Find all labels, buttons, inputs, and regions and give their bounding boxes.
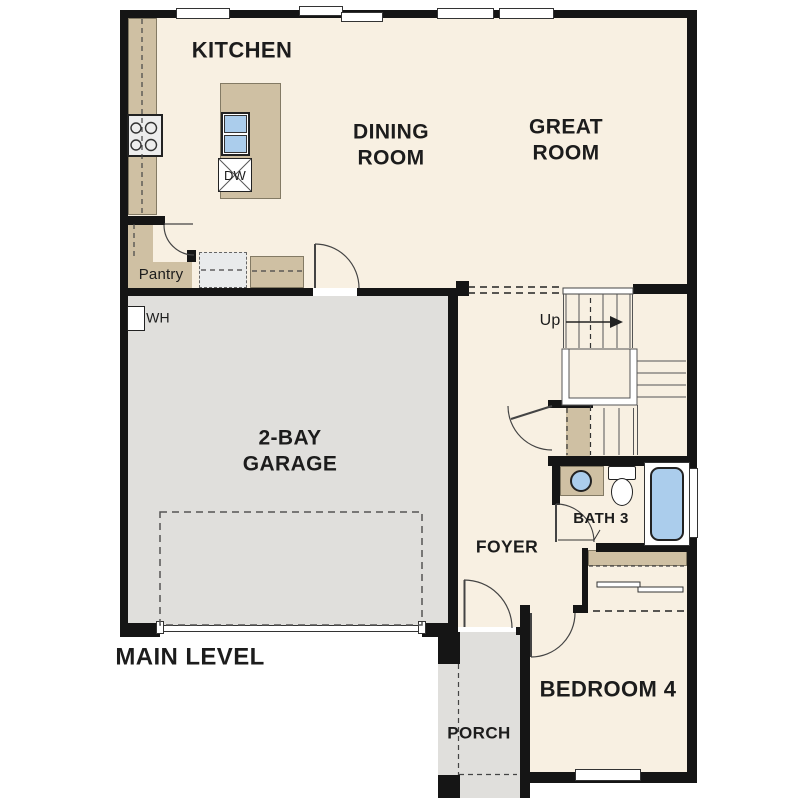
wall-garage-right xyxy=(448,288,458,635)
wall-right xyxy=(687,10,697,783)
dining-room-label: DINING ROOM xyxy=(346,119,436,170)
window-top-3 xyxy=(341,12,383,22)
garage-label: 2-BAY GARAGE xyxy=(235,425,345,476)
foyer-label: FOYER xyxy=(476,536,538,557)
porch-post-bottom xyxy=(438,775,460,798)
understair-closet xyxy=(566,408,590,458)
window-bedroom xyxy=(575,769,641,781)
window-top-4 xyxy=(437,8,494,19)
island-sink-bowl-top xyxy=(224,115,247,133)
wall-garage-top-left xyxy=(120,288,313,296)
bathtub xyxy=(650,467,684,541)
counter-by-fridge xyxy=(250,256,304,288)
garage-door xyxy=(160,625,422,632)
garage-door-cap-left xyxy=(156,621,164,634)
garage-door-cap-right xyxy=(418,621,426,634)
bath-sink xyxy=(570,470,592,492)
kitchen-label: KITCHEN xyxy=(192,38,293,65)
water-heater xyxy=(127,306,145,331)
wall-closet-left xyxy=(582,548,588,608)
porch-label: PORCH xyxy=(447,724,510,745)
window-top-5 xyxy=(499,8,554,19)
wall-garage-bottom-left xyxy=(120,623,160,637)
bath-label: BATH 3 xyxy=(573,510,628,528)
window-top-2 xyxy=(299,6,343,16)
stairs-up-label: Up xyxy=(540,311,561,331)
wall-garage-top-right xyxy=(357,288,458,296)
wall-bedroom-left xyxy=(520,605,530,798)
window-top-1 xyxy=(176,8,230,19)
wall-kitchen-counter-stub xyxy=(120,216,165,225)
pantry-jamb xyxy=(187,250,196,262)
toilet-bowl xyxy=(611,478,633,506)
porch-post-top xyxy=(438,632,460,664)
dishwasher-label: DW xyxy=(224,168,246,184)
wall-bath-left xyxy=(552,458,560,505)
plan-title: MAIN LEVEL xyxy=(115,642,264,671)
cooktop xyxy=(127,114,163,157)
floor-plan: KITCHEN DINING ROOM GREAT ROOM 2-BAY GAR… xyxy=(0,0,810,810)
wall-stair-stub xyxy=(548,400,593,408)
wall-greatroom-right xyxy=(633,284,687,294)
island-sink-bowl-bottom xyxy=(224,135,247,153)
water-heater-label: WH xyxy=(146,309,170,326)
refrigerator-space xyxy=(199,252,247,288)
closet-shelf xyxy=(588,550,687,566)
bedroom-label: BEDROOM 4 xyxy=(540,677,677,704)
pantry-label: Pantry xyxy=(139,266,184,284)
great-room-label: GREAT ROOM xyxy=(521,114,611,165)
